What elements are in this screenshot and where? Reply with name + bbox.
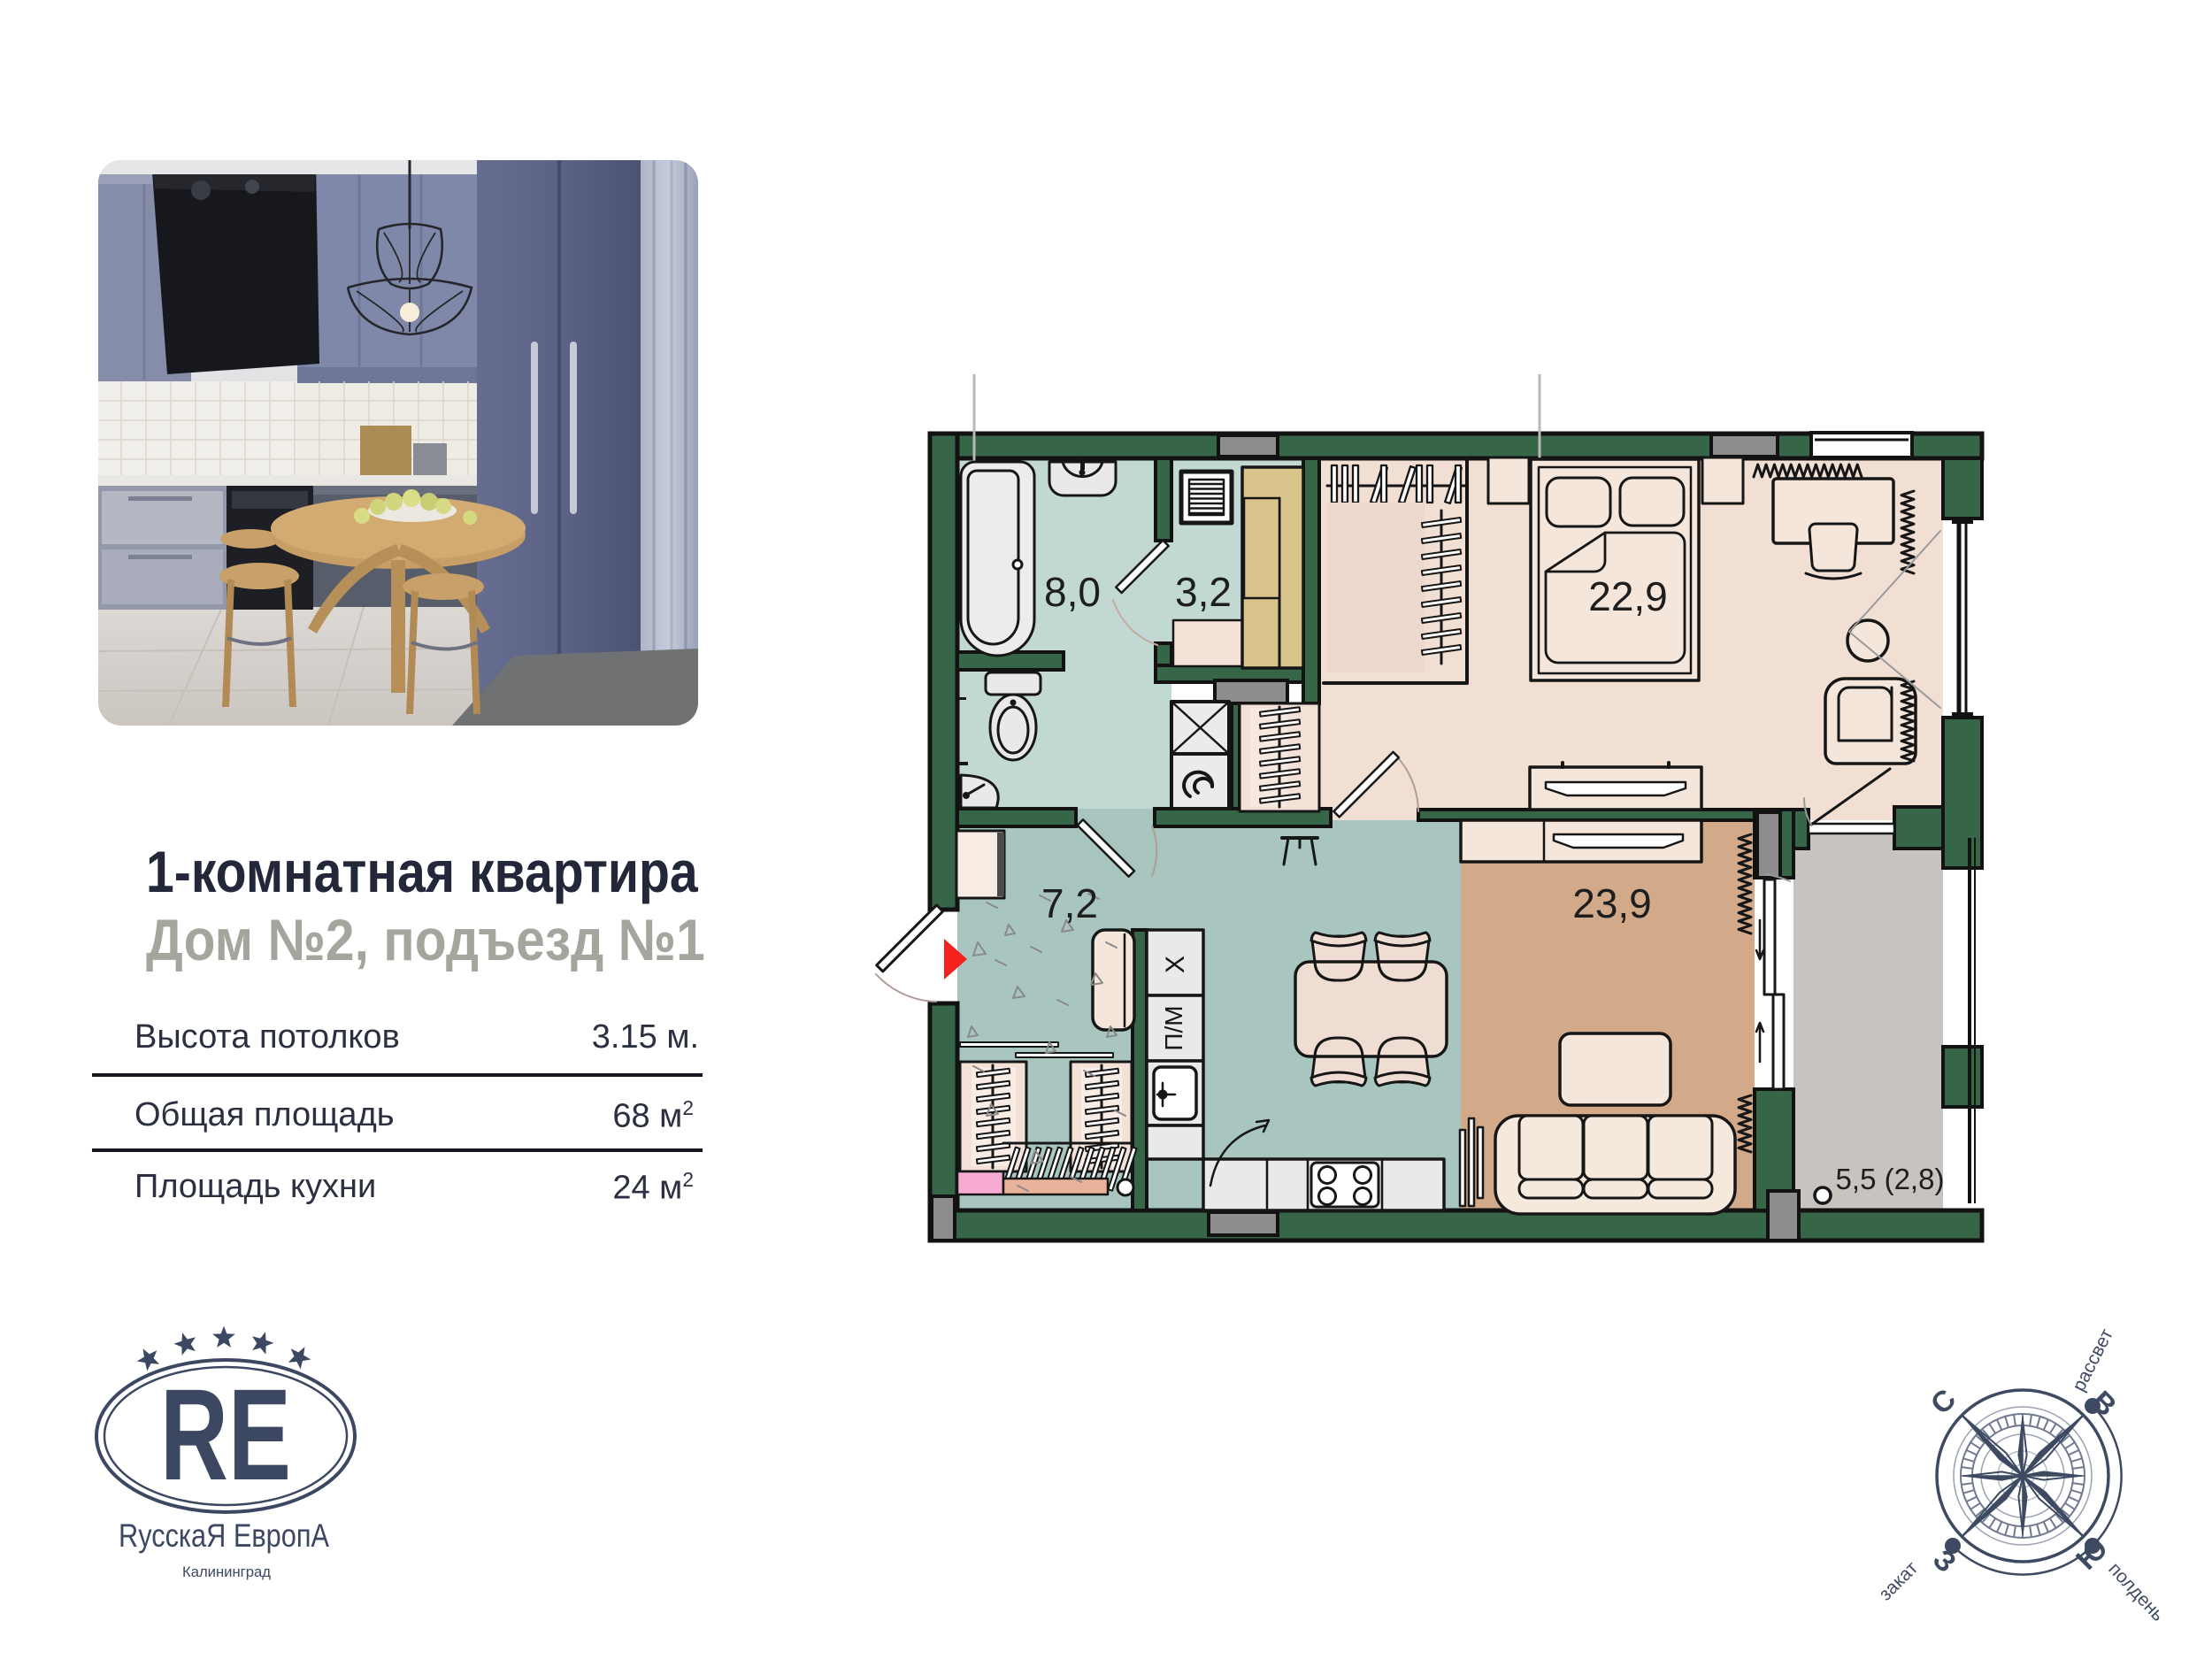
svg-text:5,5 (2,8): 5,5 (2,8): [1836, 1163, 1945, 1195]
svg-text:3,2: 3,2: [1175, 569, 1232, 615]
svg-text:8,0: 8,0: [1044, 569, 1101, 615]
svg-text:23,9: 23,9: [1572, 880, 1652, 926]
svg-text:полдень: полдень: [2104, 1559, 2168, 1625]
svg-text:закат: закат: [1875, 1557, 1922, 1604]
svg-text:В: В: [2085, 1384, 2124, 1422]
svg-text:RусскаЯ ЕвропА: RусскаЯ ЕвропА: [119, 1517, 329, 1554]
svg-text:П/М: П/М: [1160, 1005, 1187, 1050]
svg-text:рассвет: рассвет: [2069, 1325, 2117, 1394]
svg-text:7,2: 7,2: [1041, 880, 1098, 926]
svg-text:RE: RE: [160, 1363, 291, 1508]
svg-text:С: С: [1924, 1382, 1962, 1420]
svg-text:22,9: 22,9: [1588, 573, 1668, 619]
svg-text:Х: Х: [1161, 956, 1190, 973]
svg-text:Калининград: Калининград: [182, 1563, 271, 1580]
